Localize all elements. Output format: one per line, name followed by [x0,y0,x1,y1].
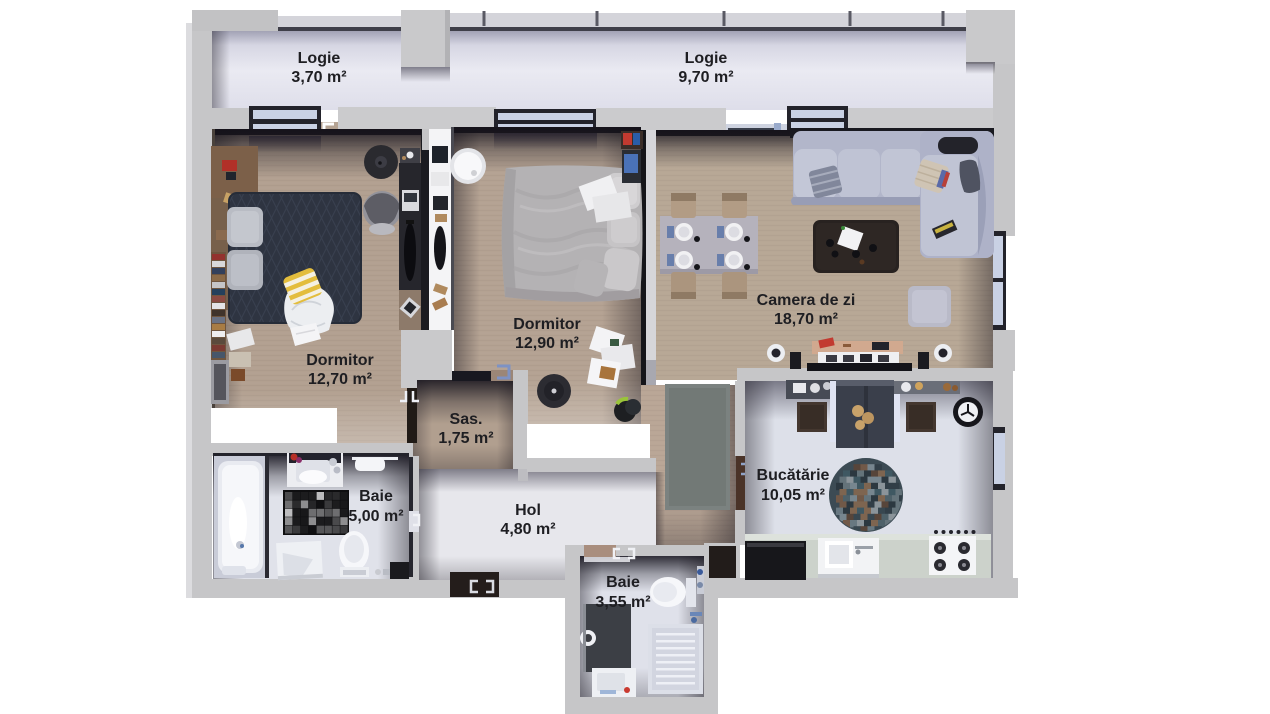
svg-text:10,05 m²: 10,05 m² [761,487,825,504]
svg-text:Logie: Logie [298,50,341,67]
svg-text:Dormitor: Dormitor [306,352,374,369]
svg-text:4,80 m²: 4,80 m² [500,521,555,538]
svg-text:9,70 m²: 9,70 m² [678,69,733,86]
svg-text:Bucătărie: Bucătărie [757,467,830,484]
svg-text:Baie: Baie [606,574,640,591]
svg-text:Camera de zi: Camera de zi [757,292,856,309]
svg-text:18,70 m²: 18,70 m² [774,311,838,328]
svg-text:12,90 m²: 12,90 m² [515,335,579,352]
svg-text:Hol: Hol [515,502,541,519]
svg-text:5,00 m²: 5,00 m² [348,508,403,525]
svg-text:3,70 m²: 3,70 m² [291,69,346,86]
svg-text:12,70 m²: 12,70 m² [308,371,372,388]
svg-text:3,55 m²: 3,55 m² [595,594,650,611]
svg-text:Baie: Baie [359,488,393,505]
svg-text:Logie: Logie [685,50,728,67]
svg-text:1,75 m²: 1,75 m² [438,430,493,447]
svg-text:Dormitor: Dormitor [513,316,581,333]
svg-text:Sas.: Sas. [450,411,483,428]
